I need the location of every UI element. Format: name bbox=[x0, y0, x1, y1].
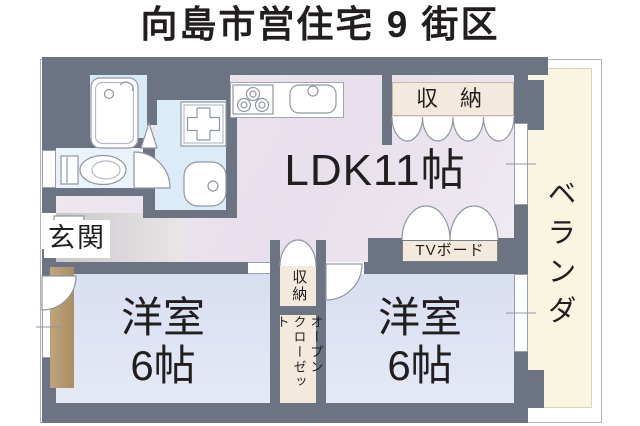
stove-burners-icon bbox=[233, 85, 273, 114]
kitchen-sink-icon bbox=[290, 85, 336, 113]
washing-machine-pan-icon bbox=[181, 102, 226, 146]
bathtub-icon bbox=[91, 78, 138, 148]
veranda-label-text: ベランダ bbox=[542, 178, 574, 334]
bedroom-right-label: 洋室 6帖 bbox=[326, 294, 514, 391]
bedroom-left-label: 洋室 6帖 bbox=[56, 294, 270, 391]
washbasin-icon bbox=[184, 162, 226, 206]
ldk-label: LDK11帖 bbox=[230, 147, 520, 195]
veranda-label: ベランダ bbox=[524, 156, 592, 356]
toilet-icon bbox=[61, 156, 126, 185]
floor-plan: 向島市営住宅 9 街区 bbox=[0, 0, 640, 426]
